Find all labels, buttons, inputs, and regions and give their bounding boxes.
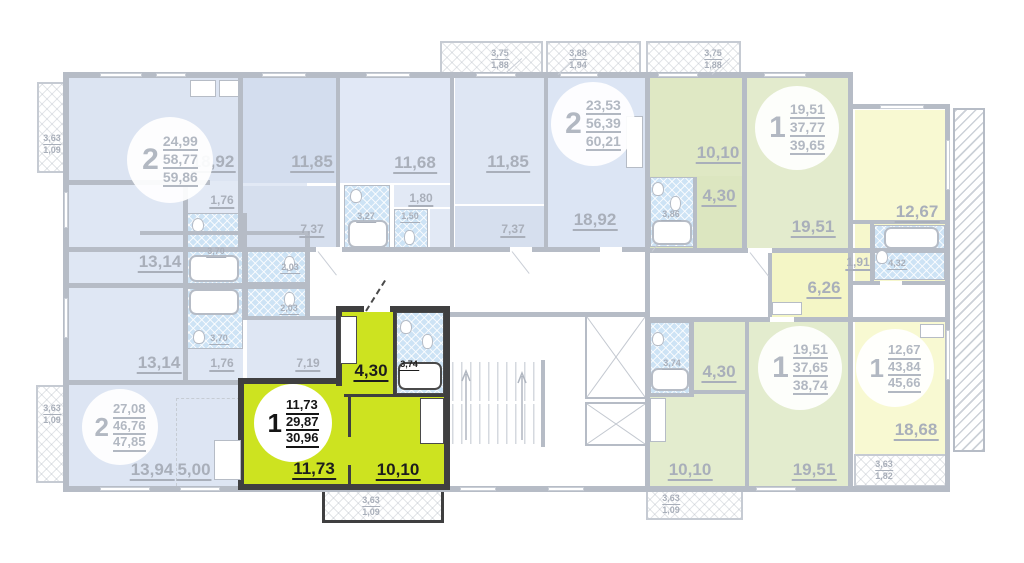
apartment-badge-bottom-left[interactable]: 2 27,0846,7647,85: [82, 389, 158, 465]
room-area-label: 3,27: [356, 212, 376, 223]
room-area-label-selected: 10,10: [376, 461, 421, 481]
wall: [445, 312, 650, 317]
apartment-badge-bottom-yellow[interactable]: 1 12,6743,8445,66: [856, 329, 934, 407]
balcony-label: 3,631,09: [43, 403, 61, 426]
balcony-top-3: [646, 41, 741, 75]
room-area-label-selected: 11,73: [292, 460, 336, 480]
room-area-label: 11,85: [290, 153, 334, 173]
apartment-badge-top-left[interactable]: 2 24,9958,7759,86: [127, 117, 213, 203]
bathtub: [884, 227, 939, 249]
kitchen-unit: [214, 440, 241, 480]
door-opening: [748, 248, 772, 253]
room-area-label: 4,30: [701, 363, 736, 383]
apartment-room-count: 2: [142, 145, 159, 175]
bathtub: [189, 289, 239, 315]
sink: [652, 332, 664, 346]
window: [262, 73, 306, 77]
room-area-label: 5,00: [176, 461, 211, 481]
wall: [243, 213, 247, 320]
sink: [876, 250, 888, 264]
balcony-label: 3,751,88: [704, 48, 722, 71]
balcony-bottom-green: [646, 489, 743, 520]
door-leaf: [750, 252, 769, 276]
bathtub: [652, 220, 692, 245]
window: [366, 73, 410, 77]
balcony-label: 3,631,82: [875, 459, 893, 482]
balcony-label: 3,631,09: [662, 493, 680, 516]
selected-wall: [393, 312, 396, 394]
window: [64, 192, 68, 228]
room-area-label: 19,51: [791, 218, 836, 238]
wall: [693, 177, 697, 249]
apartment-room-count: 1: [769, 113, 786, 143]
wall: [690, 322, 694, 396]
room-area-label-selected: 4,30: [353, 362, 388, 382]
balcony-label: 3,631,09: [43, 133, 61, 156]
door-opening: [770, 317, 794, 322]
staircase-arrows: [452, 362, 540, 444]
window: [658, 73, 698, 77]
balcony-label-selected: 3,631,09: [362, 495, 380, 518]
selected-wall: [344, 394, 446, 397]
kitchen-unit: [420, 398, 444, 444]
balcony-top-2: [546, 41, 641, 75]
apartment-room-count: 1: [772, 353, 789, 383]
selected-wall: [238, 484, 450, 490]
elevator-shafts: [585, 315, 647, 447]
window: [880, 105, 924, 109]
window: [548, 487, 584, 491]
door-opening: [600, 247, 622, 252]
kitchen-unit: [920, 324, 944, 338]
kitchen-zone-divider: [176, 398, 240, 399]
selected-wall: [348, 465, 351, 487]
wall: [183, 185, 188, 382]
sink: [193, 330, 205, 344]
window: [180, 487, 220, 491]
room-area-label: 1,76: [209, 357, 234, 372]
wall: [648, 393, 694, 397]
apartment-badge-bottom-green[interactable]: 1 19,5137,6538,74: [758, 326, 842, 410]
room-area-label: 7,37: [299, 223, 324, 238]
bathtub: [348, 220, 388, 248]
kitchen-unit: [219, 80, 239, 97]
room-area-label-selected: 3,74: [399, 360, 419, 371]
sink: [350, 189, 362, 203]
room-area-label: 7,37: [500, 223, 525, 238]
room-area-label: 10,10: [668, 461, 713, 481]
room-area-label: 7,19: [295, 357, 320, 372]
room-1185-b: [455, 76, 544, 204]
room-area-label: 3,70: [206, 247, 226, 258]
room-area-label: 3,70: [209, 334, 229, 345]
window: [156, 73, 186, 77]
wardrobe: [340, 316, 357, 364]
door-leaf: [512, 251, 530, 274]
apartment-badge-top-right[interactable]: 1 19,5137,7739,65: [755, 86, 839, 170]
apartment-room-count: 1: [869, 355, 883, 381]
room-area-label: 6,26: [806, 279, 841, 299]
wall: [544, 76, 548, 252]
room-area-label: 19,51: [792, 461, 837, 481]
door-opening: [316, 247, 342, 252]
room-area-label: 3,86: [661, 210, 681, 221]
bathtub: [189, 255, 239, 282]
balcony-selected: [322, 489, 444, 523]
door-leaf: [318, 251, 337, 275]
room-area-label: 11,85: [486, 153, 530, 173]
floor-plan: 18,92 11,85 11,68 11,85 1,76 7,37 3,27 1…: [0, 0, 1024, 563]
kitchen-unit: [190, 80, 216, 97]
apartment-badge-selected[interactable]: 1 11,7329,8730,96: [254, 384, 332, 462]
selected-wall: [444, 306, 450, 490]
apartment-badge-top-center[interactable]: 2 23,5356,3960,21: [551, 82, 635, 166]
wall: [742, 76, 747, 252]
room-area-label: 11,68: [393, 154, 437, 174]
window: [64, 298, 68, 338]
wall: [694, 390, 747, 394]
window: [764, 73, 806, 77]
window: [476, 73, 516, 77]
room-area-label: 4,30: [701, 187, 736, 207]
wall: [63, 380, 243, 385]
room-area-label: 1,80: [408, 192, 433, 207]
window: [100, 487, 150, 491]
window: [460, 487, 496, 491]
wall: [450, 76, 454, 252]
sink: [192, 218, 204, 232]
room-area-label: 4,32: [887, 259, 907, 270]
selected-wall: [348, 397, 351, 437]
sink: [400, 320, 412, 334]
kitchen-unit: [650, 398, 666, 442]
wall: [140, 231, 310, 235]
wall: [305, 235, 310, 320]
window: [756, 487, 796, 491]
toilet: [404, 230, 415, 245]
wall: [243, 316, 336, 320]
room-area-label: 13,14: [138, 253, 183, 273]
hall-737-a: [243, 186, 336, 248]
hall-beside-toilet: [430, 209, 451, 250]
bathtub: [651, 368, 689, 391]
door-opening: [880, 281, 902, 285]
room-area-label: 2,03: [279, 304, 299, 315]
room-area-label: 10,10: [696, 144, 741, 164]
wall: [745, 322, 749, 488]
adjacent-section-shaft: [953, 108, 985, 452]
apartment-room-count: 2: [565, 109, 582, 139]
room-area-label: 13,94: [130, 461, 175, 481]
wardrobe: [772, 302, 802, 315]
wall: [541, 360, 545, 447]
wall: [63, 72, 69, 492]
room-area-label: 18,92: [573, 211, 618, 231]
toilet: [422, 334, 433, 349]
window: [946, 330, 950, 380]
sink: [652, 182, 664, 196]
window: [560, 73, 598, 77]
apartment-room-count: 1: [267, 410, 281, 436]
room-area-label: 1,76: [209, 194, 234, 209]
wall: [650, 317, 950, 322]
balcony-label: 3,751,88: [491, 48, 509, 71]
room-area-label: 1,91: [845, 256, 870, 271]
wall: [870, 221, 874, 283]
window: [946, 140, 950, 190]
wall: [336, 76, 340, 252]
room-719: [247, 320, 336, 381]
room-area-label: 3,74: [662, 359, 682, 370]
balcony-label: 3,881,94: [569, 48, 587, 71]
balcony-bottom-yellow: [854, 454, 947, 487]
room-area-label: 12,67: [895, 203, 940, 223]
room-area-label: 1,50: [400, 212, 420, 223]
room-area-label: 18,68: [894, 421, 939, 441]
door-opening: [510, 247, 532, 252]
window: [100, 73, 142, 77]
room-area-label: 2,03: [280, 263, 300, 274]
apartment-room-count: 2: [94, 414, 108, 440]
room-area-label: 13,14: [137, 354, 182, 374]
